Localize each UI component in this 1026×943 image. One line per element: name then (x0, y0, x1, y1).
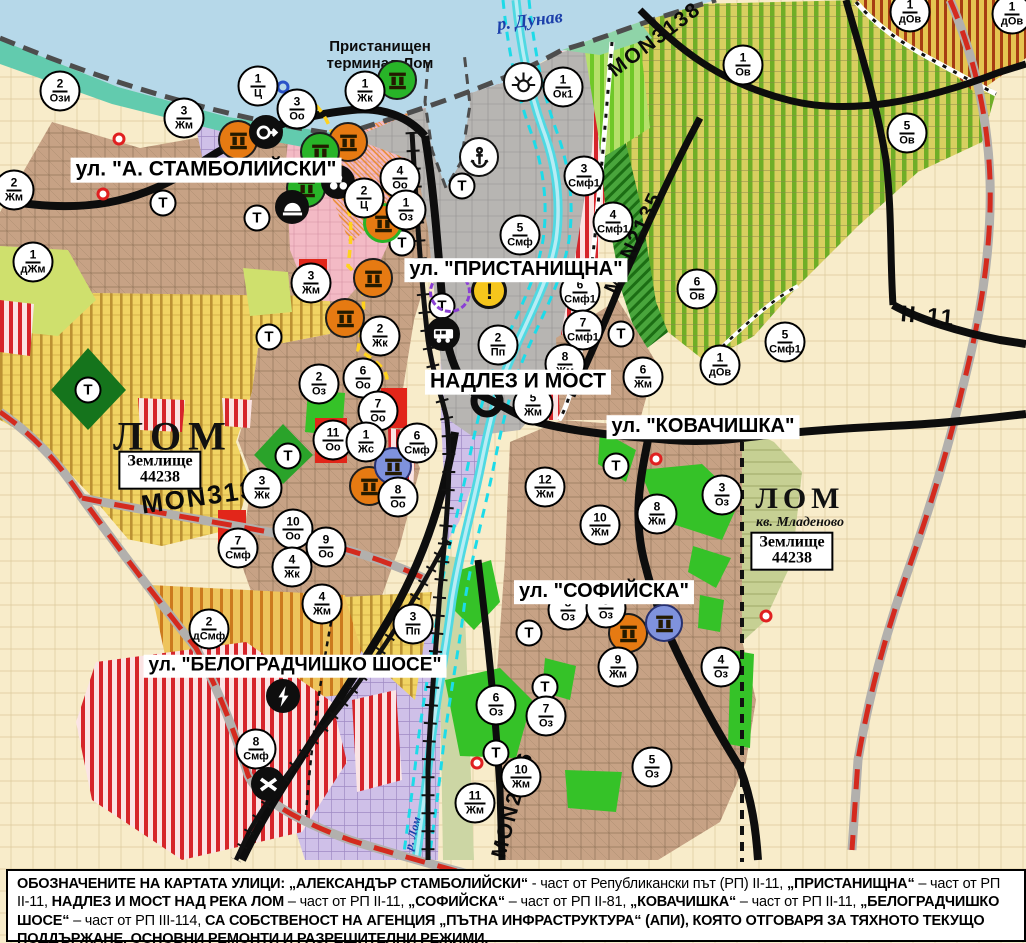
zone-marker: 3Оз (702, 475, 743, 516)
zone-marker: 2Оз (299, 364, 340, 405)
zone-marker: 1Жк (345, 71, 386, 112)
zone-marker: 1Ов (723, 45, 764, 86)
zone-marker: 6Оз (476, 685, 517, 726)
zone-marker: 7Смф (218, 528, 259, 569)
city-label-lom-east: ЛОМ (755, 482, 844, 516)
zone-marker: 4Жк (272, 547, 313, 588)
zone-marker: 5Смф1 (765, 322, 806, 363)
t-marker: Т (603, 453, 630, 480)
zone-marker: 1Оз (386, 190, 427, 231)
zoning-map-lom[interactable]: 2Ози1Ц3Оо1Жк2Жм3Жм1дЖм4Оо2Ц1Оз3Жм2Жк6Оо2… (0, 0, 1026, 943)
zone-marker: 2Пп (478, 325, 519, 366)
zone-marker: 1Жс (346, 422, 387, 463)
lightning-icon (266, 679, 300, 713)
t-marker: Т (75, 377, 102, 404)
truck-icon (426, 317, 460, 351)
road-label: II-11 (900, 300, 957, 332)
street-label-stamboliyski: ул. "А. СТАМБОЛИЙСКИ" (71, 158, 342, 183)
zone-marker: 5Оз (632, 747, 673, 788)
zone-marker: 5Ов (887, 113, 928, 154)
zone-marker: 8Смф (236, 729, 277, 770)
zone-marker: 1Ок1 (543, 67, 584, 108)
t-marker: Т (150, 190, 177, 217)
zone-marker: 1дОв (700, 345, 741, 386)
map-note: ОБОЗНАЧЕНИТЕ НА КАРТАТА УЛИЦИ: „АЛЕКСАНД… (6, 869, 1026, 942)
zone-marker: 1Ц (238, 66, 279, 107)
street-label-pristanishtna: ул. "ПРИСТАНИЩНА" (404, 258, 627, 282)
zone-marker: 8Жм (637, 494, 678, 535)
crossing-icon (251, 767, 285, 801)
dot-icon (471, 757, 484, 770)
ruins-icon (645, 604, 683, 642)
dot-icon (760, 610, 773, 623)
dot-icon (97, 188, 110, 201)
zone-marker: 3Жк (242, 468, 283, 509)
zone-marker: 8Оо (378, 477, 419, 518)
t-marker: Т (449, 173, 476, 200)
zone-marker: 2Жк (360, 316, 401, 357)
zone-marker: 10Жм (580, 505, 621, 546)
zone-marker: 5Смф (500, 215, 541, 256)
zone-marker: 6Ов (677, 269, 718, 310)
landplot-box-east: Землище 44238 (750, 532, 833, 571)
tumulus-icon (275, 190, 309, 224)
zone-marker: 6Смф (397, 423, 438, 464)
street-label-belogradchishko: ул. "БЕЛОГРАДЧИШКО ШОСЕ" (144, 655, 447, 678)
dot-icon (113, 133, 126, 146)
svg-text:!: ! (485, 279, 492, 304)
t-marker: Т (275, 443, 302, 470)
zone-marker: 2дСмф (189, 609, 230, 650)
zone-marker: 3Жм (291, 263, 332, 304)
dot-icon (650, 453, 663, 466)
zone-marker: 7Оз (526, 696, 567, 737)
anchor-icon (459, 137, 499, 177)
zone-marker: 11Жм (455, 783, 496, 824)
zone-marker: 3Пп (393, 604, 434, 645)
zone-marker: 4Жм (302, 584, 343, 625)
zone-marker: 4Смф1 (593, 202, 634, 243)
t-marker: Т (516, 620, 543, 647)
zone-marker: 3Оо (277, 89, 318, 130)
zone-marker: 2Ози (40, 71, 81, 112)
district-label-mladenovo: кв. Младеново (756, 515, 844, 531)
arrow-icon (249, 115, 283, 149)
ruins-icon (353, 258, 393, 298)
street-label-kovachishka: ул. "КОВАЧИШКА" (607, 415, 800, 439)
zone-marker: 1дЖм (13, 242, 54, 283)
street-label-sofiyska: ул. "СОФИЙСКА" (514, 580, 694, 604)
zone-marker: 6Жм (623, 357, 664, 398)
zone-marker: 12Жм (525, 467, 566, 508)
t-marker: Т (608, 321, 635, 348)
street-label-nadlez-most: НАДЛЕЗ И МОСТ (425, 370, 611, 395)
zone-marker: 2Ц (344, 178, 385, 219)
t-marker: Т (244, 205, 271, 232)
zone-marker: 9Жм (598, 647, 639, 688)
zone-marker: 10Жм (501, 757, 542, 798)
zone-marker: 3Жм (164, 98, 205, 139)
sun-icon (503, 62, 543, 102)
zone-marker: 4Оз (701, 647, 742, 688)
t-marker: Т (256, 324, 283, 351)
landplot-box-west: Землище 44238 (118, 451, 201, 490)
zone-marker: 3Смф1 (564, 156, 605, 197)
